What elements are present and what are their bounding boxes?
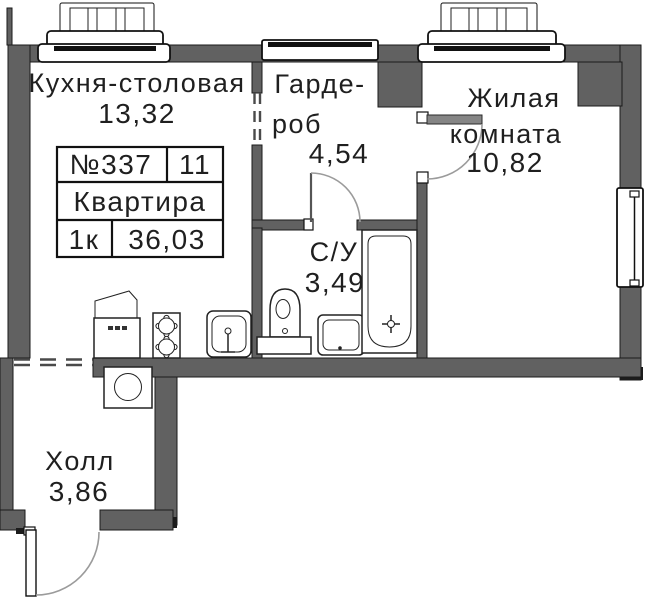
room-label-bathroom: С/У (310, 237, 359, 267)
wall-partition-stub (252, 62, 262, 93)
room-area-kitchen: 13,32 (98, 98, 176, 129)
apartment-info-table: №337 11 Квартира 1к 36,03 (57, 147, 223, 257)
sink-faucet (225, 328, 231, 334)
sink-inner (323, 320, 359, 350)
window-tick (630, 191, 639, 197)
toilet-drain (283, 329, 288, 334)
pylon-living-corner (578, 62, 622, 106)
door-leaf (26, 530, 36, 596)
stove-icon (153, 313, 180, 358)
kitchen-sink-icon (207, 311, 251, 357)
position-number: 11 (179, 149, 211, 180)
bathroom-sink-icon (318, 315, 364, 355)
room-area-hall: 3,86 (49, 476, 110, 507)
bathroom-door (304, 173, 360, 230)
washing-machine-icon (104, 367, 152, 408)
fridge-flap (95, 291, 137, 318)
wall-hall-right (155, 377, 177, 525)
living-side-window (617, 188, 643, 287)
wardrobe-window (262, 40, 378, 60)
entrance-door (24, 527, 99, 596)
room-label-living-line2: комната (450, 119, 563, 149)
wall-left-stub-top (7, 8, 12, 45)
window-glazing (268, 42, 372, 47)
bathtub-inner (368, 236, 411, 347)
room-label-wardrobe-line2: роб (272, 109, 322, 139)
fridge-icon (94, 291, 140, 358)
sink-drain (338, 346, 342, 350)
toilet-tank (257, 337, 311, 354)
wall-bathroom-right (417, 173, 427, 358)
fridge-body (94, 318, 140, 358)
room-label-wardrobe-line1: Гарде- (274, 69, 365, 99)
door-swing-arc (311, 173, 360, 222)
washer-drum (115, 374, 142, 401)
wall-hall-bottom (100, 510, 173, 530)
window-band (617, 188, 643, 287)
room-area-wardrobe: 4,54 (309, 138, 370, 169)
wall-bottom (93, 358, 641, 377)
wall-hall-left (0, 358, 13, 530)
window-glazing (54, 46, 156, 51)
room-label-hall: Холл (45, 446, 115, 476)
room-area-living: 10,82 (466, 147, 544, 178)
door-hinge (417, 172, 428, 183)
room-labels: Кухня-столовая 13,32 Гарде- роб 4,54 Жил… (29, 68, 563, 507)
floor-plan: Кухня-столовая 13,32 Гарде- роб 4,54 Жил… (0, 0, 646, 600)
room-label-living-line1: Жилая (468, 83, 561, 113)
wall-partition-lower (252, 145, 262, 228)
total-area: 36,03 (128, 224, 206, 255)
room-label-kitchen: Кухня-столовая (29, 68, 246, 98)
rooms-count: 1к (69, 224, 100, 255)
toilet-bowl-inner (276, 300, 290, 319)
window-glazing (434, 46, 550, 51)
fridge-vent (115, 326, 120, 330)
kitchen-window (38, 3, 170, 62)
pylon-wardrobe (378, 62, 422, 107)
living-window (418, 3, 565, 62)
apartment-type: Квартира (73, 186, 206, 217)
wall-left (8, 45, 30, 358)
wall-hall-bottom-left-stub (0, 510, 25, 530)
door-hinge (417, 112, 428, 123)
fridge-vent (122, 326, 127, 330)
fridge-vent (108, 326, 113, 330)
door-swing-arc (36, 532, 99, 595)
toilet-icon (257, 289, 311, 354)
room-area-bathroom: 3,49 (305, 267, 366, 298)
window-tick (630, 280, 639, 286)
apartment-number: №337 (70, 149, 153, 180)
wall-hall-nub (16, 528, 24, 534)
bathtub-icon (362, 230, 417, 353)
